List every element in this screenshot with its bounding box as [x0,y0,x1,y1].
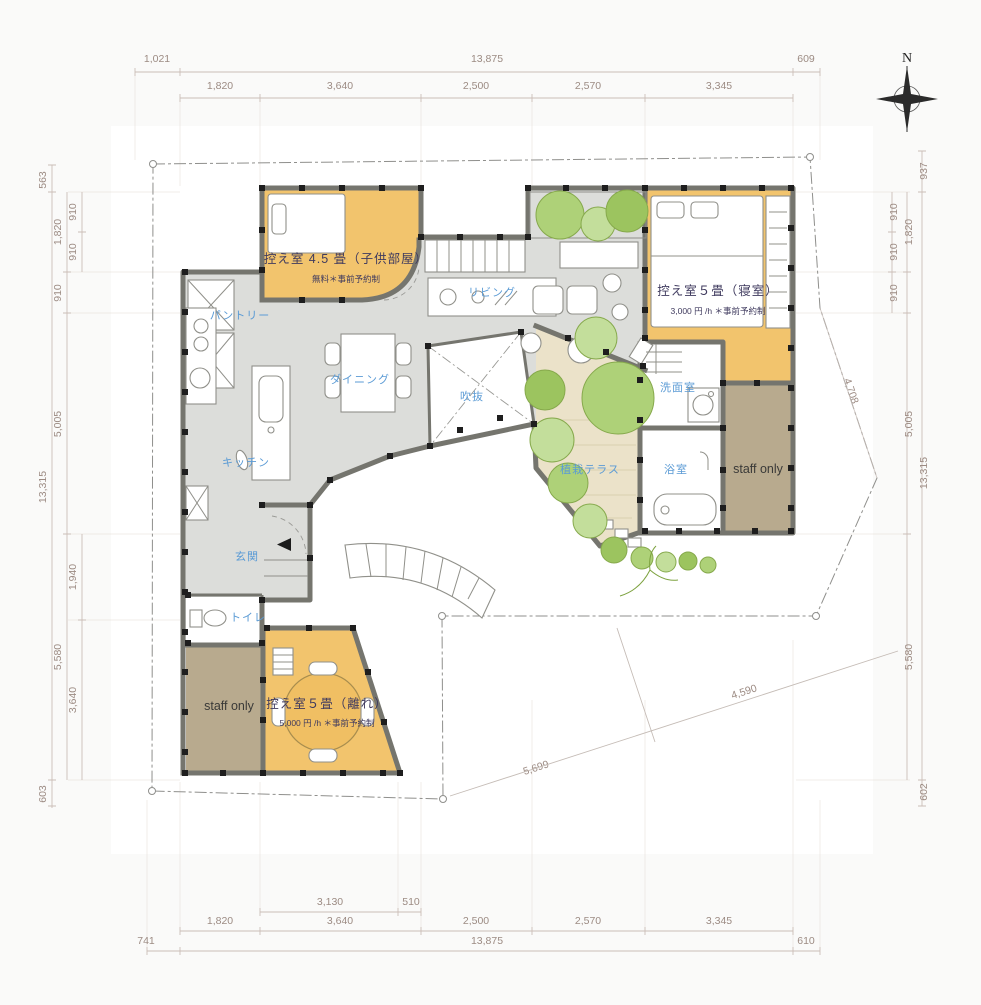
label-dining: ダイニング [330,372,390,386]
floor-plan-canvas: 1,021 13,875 609 1,820 3,640 2,500 2,570… [0,0,981,1000]
dim-left-5005: 5,005 [52,411,64,437]
label-room-child: 控え室 4.5 畳（子供部屋） [264,251,428,266]
compass-north-label: N [902,51,912,66]
dim-top-1820: 1,820 [207,80,233,92]
label-toilet: トイレ [230,612,266,624]
dim-bot-1820: 1,820 [207,915,233,927]
dim-left-3640: 3,640 [67,687,79,713]
compass-rose: N [876,51,938,132]
dim-left-5580: 5,580 [52,644,64,670]
dim-top-3640: 3,640 [327,80,353,92]
floor-plan-page: 1,021 13,875 609 1,820 3,640 2,500 2,570… [0,0,981,1000]
label-staff-right: staff only [733,462,784,476]
dim-right-937: 937 [918,162,930,180]
dim-bot-3130: 3,130 [317,896,343,908]
dim-top-2570: 2,570 [575,80,601,92]
dim-left-603: 603 [37,785,49,803]
dim-right-1820: 1,820 [903,219,915,245]
dim-bot-741: 741 [137,935,155,947]
dim-right-5580: 5,580 [903,644,915,670]
dim-bot-3640: 3,640 [327,915,353,927]
dim-top-3345: 3,345 [706,80,732,92]
label-living: リビング [468,285,516,299]
label-pantry: パントリー [210,309,271,322]
label-room-hanare-note: 5,000 円 /h ＊事前予約制 [280,718,375,728]
dim-right-13315: 13,315 [918,457,930,489]
dim-top-609: 609 [797,53,815,65]
label-room-hanare: 控え室５畳（離れ） [266,696,388,711]
dim-top-2500: 2,500 [463,80,489,92]
label-terrace: 植栽テラス [560,462,620,476]
dim-left-1820: 1,820 [52,219,64,245]
dim-bot-3345: 3,345 [706,915,732,927]
dim-left-910b: 910 [67,243,79,261]
dim-right-910a: 910 [888,203,900,221]
dim-left-910a: 910 [67,203,79,221]
label-void: 吹抜 [460,389,484,403]
dim-left-910: 910 [52,284,64,302]
dim-bot-2570: 2,570 [575,915,601,927]
dim-right-602: 602 [918,783,930,801]
dim-bot-510: 510 [402,896,420,908]
label-room-bedroom: 控え室５畳（寝室） [657,283,779,298]
dim-left-563: 563 [37,171,49,189]
label-room-child-note: 無料＊事前予約制 [312,274,380,284]
label-bath: 浴室 [664,462,688,476]
dim-left-1940: 1,940 [67,564,79,590]
dim-right-910c: 910 [888,284,900,302]
label-staff-left: staff only [204,699,255,713]
dim-bot-2500: 2,500 [463,915,489,927]
label-entrance: 玄関 [235,549,259,563]
dim-bot-610: 610 [797,935,815,947]
label-room-bedroom-note: 3,000 円 /h ＊事前予約制 [671,306,766,316]
label-kitchen: キッチン [222,456,270,469]
dim-left-13315: 13,315 [37,471,49,503]
dim-top-1021: 1,021 [144,53,170,65]
room-staff-right [725,383,791,531]
dim-right-910b: 910 [888,243,900,261]
label-washroom: 洗面室 [660,380,696,394]
dim-right-5005: 5,005 [903,411,915,437]
dim-bot-13875: 13,875 [471,935,503,947]
dim-top-13875: 13,875 [471,53,503,65]
